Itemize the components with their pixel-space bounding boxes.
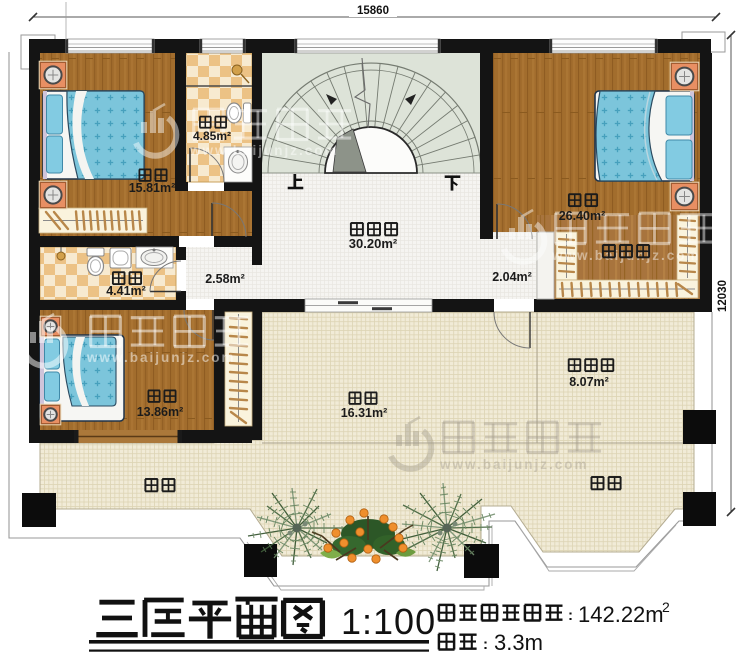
svg-text:12030: 12030 [717, 280, 729, 312]
svg-text:2.04m²: 2.04m² [492, 270, 532, 284]
svg-text:4.85m²: 4.85m² [193, 129, 231, 143]
svg-text:www.baijunjz.com: www.baijunjz.com [439, 457, 589, 472]
svg-text:8.07m²: 8.07m² [569, 375, 609, 389]
svg-text:16.31m²: 16.31m² [341, 406, 388, 420]
svg-text:2.58m²: 2.58m² [205, 272, 245, 286]
svg-text::: : [483, 636, 488, 653]
svg-text:www.baijunjz.com: www.baijunjz.com [189, 143, 339, 158]
svg-text:13.86m²: 13.86m² [137, 405, 184, 419]
svg-text::: : [568, 607, 573, 624]
svg-text:1:100: 1:100 [341, 601, 436, 642]
svg-text:142.22m: 142.22m [578, 602, 664, 627]
svg-text:26.40m²: 26.40m² [559, 209, 606, 223]
svg-text:15860: 15860 [357, 5, 389, 17]
svg-text:30.20m²: 30.20m² [349, 236, 398, 251]
svg-text:4.41m²: 4.41m² [106, 284, 146, 298]
svg-text:15.81m²: 15.81m² [129, 181, 176, 195]
svg-text:www.baijunjz.com: www.baijunjz.com [86, 350, 236, 365]
svg-text:2: 2 [662, 599, 670, 615]
svg-text:3.3m: 3.3m [494, 630, 543, 655]
